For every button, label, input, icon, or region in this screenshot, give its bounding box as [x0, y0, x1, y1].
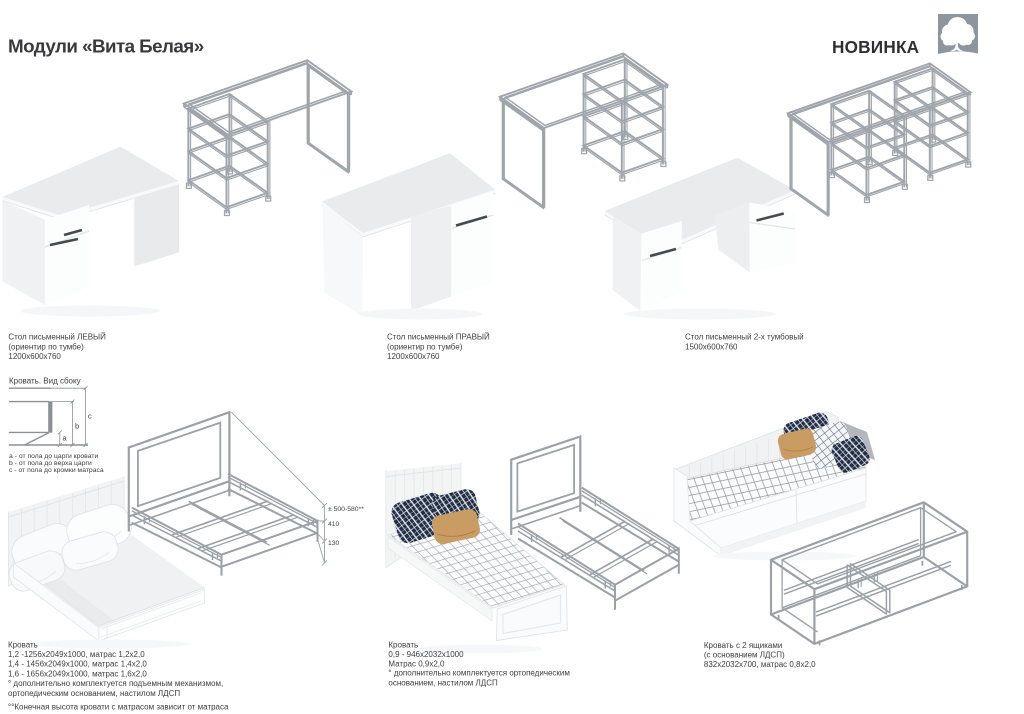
svg-text:°°Конечная высота кровати с ма: °°Конечная высота кровати с матрасом зав… — [8, 703, 229, 712]
svg-text:b - от пола до верха царги: b - от пола до верха царги — [9, 460, 92, 467]
svg-text:Модули «Вита Белая»: Модули «Вита Белая» — [8, 36, 204, 57]
svg-text:Кровать: Кровать — [388, 640, 418, 649]
svg-text:(с основанием ЛДСП): (с основанием ЛДСП) — [704, 651, 785, 660]
svg-text:(ориентир по тумбе): (ориентир по тумбе) — [8, 342, 84, 351]
svg-text:° дополнительно комплектуется: ° дополнительно комплектуется ортопедиче… — [388, 669, 570, 678]
svg-text:1500х600х760: 1500х600х760 — [685, 342, 738, 351]
svg-text:a - от пола до царги кровати: a - от пола до царги кровати — [9, 453, 98, 460]
svg-text:Стол письменный ПРАВЫЙ: Стол письменный ПРАВЫЙ — [387, 333, 490, 342]
svg-text:c: c — [88, 412, 92, 421]
svg-text:Кровать. Вид сбоку: Кровать. Вид сбоку — [9, 377, 81, 386]
svg-text:c - от пола до кромки матраса: c - от пола до кромки матраса — [9, 467, 104, 474]
svg-text:1,4 - 1456х2049х1000, матрас 1: 1,4 - 1456х2049х1000, матрас 1,4х2,0 — [8, 660, 147, 669]
svg-text:130: 130 — [328, 540, 340, 547]
svg-text:Кровать: Кровать — [8, 640, 38, 649]
svg-text:основанием, настилом ЛДСП: основанием, настилом ЛДСП — [388, 678, 498, 687]
svg-text:832х2032х700, матрас 0,8х2,0: 832х2032х700, матрас 0,8х2,0 — [704, 660, 816, 669]
svg-text:Матрас 0,9х2,0: Матрас 0,9х2,0 — [388, 660, 445, 669]
svg-text:1200х600х760: 1200х600х760 — [387, 352, 440, 361]
svg-text:Стол письменный ЛЕВЫЙ: Стол письменный ЛЕВЫЙ — [8, 333, 106, 342]
svg-text:° дополнительно комплектуется: ° дополнительно комплектуется подъемным … — [8, 679, 223, 688]
svg-text:0,9 - 946х2032х1000: 0,9 - 946х2032х1000 — [388, 650, 464, 659]
svg-text:1,2 -1256х2049х1000, матрас 1,: 1,2 -1256х2049х1000, матрас 1,2х2,0 — [8, 650, 145, 659]
svg-text:ортопедическим основанием, нас: ортопедическим основанием, настилом ЛДСП — [8, 689, 180, 698]
svg-text:НОВИНКА: НОВИНКА — [832, 37, 919, 57]
svg-text:1200х600х760: 1200х600х760 — [8, 352, 61, 361]
svg-text:(ориентир по тумбе): (ориентир по тумбе) — [387, 342, 463, 351]
svg-text:Кровать с 2 ящиками: Кровать с 2 ящиками — [704, 641, 782, 650]
svg-text:410: 410 — [328, 521, 340, 528]
svg-text:Стол письменный 2-х тумбовый: Стол письменный 2-х тумбовый — [685, 333, 804, 342]
svg-text:1,6 - 1656х2049х1000, матрас 1: 1,6 - 1656х2049х1000, матрас 1,6х2,0 — [8, 669, 147, 678]
svg-text:b: b — [75, 422, 79, 431]
svg-text:± 500-580**: ± 500-580** — [328, 506, 364, 513]
